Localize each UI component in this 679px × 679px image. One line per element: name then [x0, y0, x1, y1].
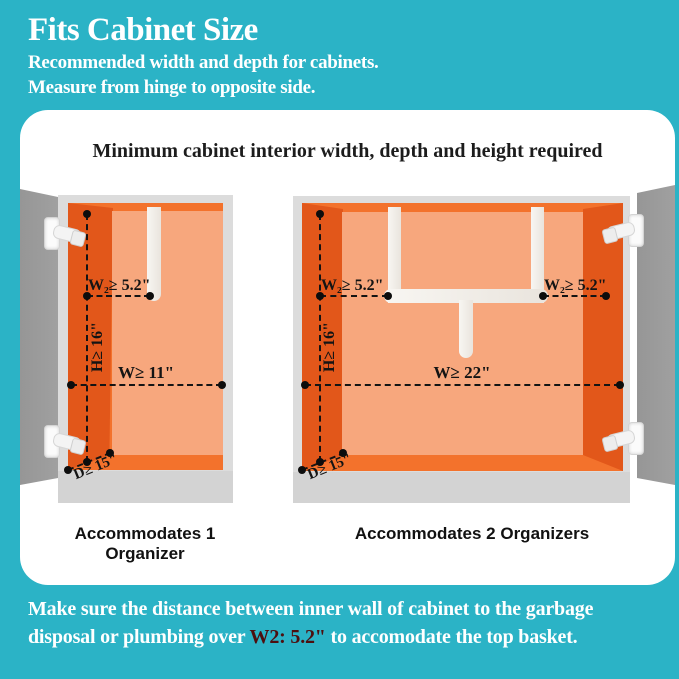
hinge-icon	[44, 214, 84, 254]
measure-dot	[218, 381, 226, 389]
page-title: Fits Cabinet Size	[28, 12, 258, 49]
footer-line-1: Make sure the distance between inner wal…	[28, 595, 660, 623]
measure-dot	[316, 292, 324, 300]
footer-note: Make sure the distance between inner wal…	[28, 595, 660, 651]
cabinet-two-w2-left-line	[320, 295, 388, 297]
measure-dot	[316, 210, 324, 218]
measure-dot	[67, 381, 75, 389]
page-subtitle: Recommended width and depth for cabinets…	[28, 50, 378, 100]
measure-dot	[616, 381, 624, 389]
cabinet-one-w2-line	[87, 295, 150, 297]
measure-dot	[83, 292, 91, 300]
footer-line-2-after: to accomodate the top basket.	[326, 626, 578, 648]
measure-dot	[539, 292, 547, 300]
cabinet-two-height-label: H≥ 16"	[321, 305, 339, 389]
measure-dot	[384, 292, 392, 300]
cabinet-one-height-line	[86, 214, 88, 462]
organizer-stem	[459, 300, 473, 358]
measure-dot	[146, 292, 154, 300]
cabinet-two-w2-right-label: W₂≥ 5.2"	[544, 277, 606, 295]
cabinet-one-caption: Accommodates 1 Organizer	[35, 524, 255, 564]
cabinet-two-width-line	[305, 384, 620, 386]
footer-line-2: disposal or plumbing over W2: 5.2" to ac…	[28, 623, 660, 651]
infographic: Fits Cabinet Size Recommended width and …	[0, 0, 679, 679]
cabinet-two-base	[293, 472, 630, 503]
cabinet-one-w2-label: W₂≥ 5.2"	[88, 277, 150, 295]
cabinet-one-width-label: W≥ 11"	[96, 363, 196, 383]
cabinet-two-w2-left-label: W₂≥ 5.2"	[321, 277, 383, 295]
cabinet-two-width-label: W≥ 22"	[412, 363, 512, 383]
measure-dot	[301, 381, 309, 389]
panel-title: Minimum cabinet interior width, depth an…	[20, 140, 675, 163]
footer-line-2-before: disposal or plumbing over	[28, 626, 250, 648]
cabinet-two-w2-right-line	[543, 295, 606, 297]
subtitle-line-2: Measure from hinge to opposite side.	[28, 75, 378, 100]
hinge-icon	[604, 211, 644, 251]
measure-dot	[602, 292, 610, 300]
measure-dot	[83, 210, 91, 218]
hinge-icon	[604, 419, 644, 459]
cabinet-one-width-line	[71, 384, 222, 386]
cabinet-two-caption: Accommodates 2 Organizers	[352, 524, 592, 544]
footer-highlight: W2: 5.2"	[250, 626, 326, 648]
cabinet-one-back-wall	[112, 211, 223, 455]
subtitle-line-1: Recommended width and depth for cabinets…	[28, 50, 378, 75]
hinge-icon	[44, 422, 84, 462]
